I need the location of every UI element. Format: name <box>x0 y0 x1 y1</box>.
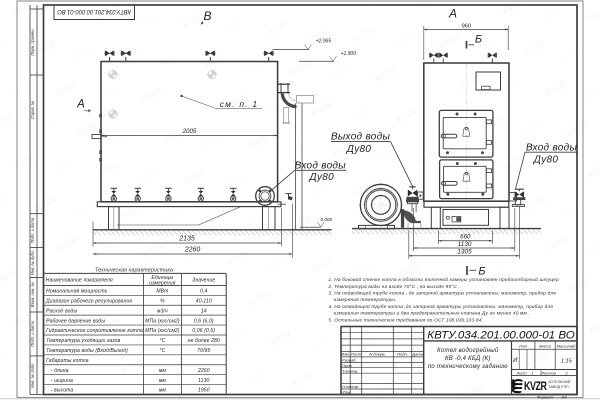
svg-text:0.000: 0.000 <box>321 217 333 222</box>
svg-text:°С: °С <box>159 348 165 354</box>
svg-text:Подп. и дата: Подп. и дата <box>30 320 35 346</box>
svg-text:Температура уходящих газов: Температура уходящих газов <box>46 338 120 344</box>
svg-text:мм: мм <box>159 378 167 384</box>
svg-text:0,06 (0,6): 0,06 (0,6) <box>192 328 215 334</box>
svg-text:Котел водогрейный: Котел водогрейный <box>437 347 499 354</box>
svg-text:Номинальная мощность: Номинальная мощность <box>46 289 108 295</box>
svg-text:Гидравлическое сопротивление к: Гидравлическое сопротивление котла <box>46 328 143 334</box>
svg-text:ЗАВОД РЭП: ЗАВОД РЭП <box>549 385 570 389</box>
svg-text:1: 1 <box>531 371 533 376</box>
svg-text:А: А <box>448 7 457 21</box>
svg-text:- ширина: - ширина <box>46 378 73 384</box>
svg-text:Т.контр.: Т.контр. <box>342 368 358 373</box>
svg-text:40-110: 40-110 <box>196 298 212 304</box>
svg-text:Лит: Лит <box>518 344 528 349</box>
svg-text:- высота: - высота <box>46 388 73 394</box>
svg-text:Масса: Масса <box>539 344 552 349</box>
svg-text:Габариты котла: Габариты котла <box>46 358 89 364</box>
svg-text:4. На отводящей трубе котла ,: 4. На отводящей трубе котла ,до запорной… <box>328 303 553 310</box>
svg-text:Пров.: Пров. <box>342 363 353 368</box>
svg-text:см. п. 1: см. п. 1 <box>220 99 259 109</box>
svg-text:°С: °С <box>159 338 165 344</box>
svg-text:Лист: Лист <box>515 371 527 376</box>
svg-text:1305: 1305 <box>457 249 472 256</box>
svg-text:2260: 2260 <box>184 247 201 254</box>
svg-text:0,4: 0,4 <box>200 289 207 295</box>
svg-text:+2.065: +2.065 <box>316 39 332 45</box>
svg-text:Н.контр.: Н.контр. <box>342 384 359 389</box>
svg-text:2. Температура воды на входе: 2. Температура воды на входе 70°С , на в… <box>327 284 460 290</box>
svg-text:2135: 2135 <box>178 236 195 243</box>
svg-text:Ду80: Ду80 <box>346 144 372 155</box>
svg-text:1130: 1130 <box>458 241 472 248</box>
svg-text:Б: Б <box>475 34 482 46</box>
svg-text:мм: мм <box>159 368 167 374</box>
svg-text:по техническому заданию: по техническому заданию <box>428 364 508 370</box>
svg-text:Инв. № дубл.: Инв. № дубл. <box>30 250 35 275</box>
svg-text:Листов: Листов <box>540 371 556 376</box>
svg-text:Масштаб: Масштаб <box>557 344 576 349</box>
svg-text:И: И <box>513 358 518 364</box>
svg-text:14: 14 <box>201 308 207 314</box>
svg-text:1:15: 1:15 <box>561 358 573 364</box>
svg-text:Ду80: Ду80 <box>533 154 559 165</box>
svg-text:Дата: Дата <box>411 352 423 357</box>
svg-text:Формат: Формат <box>537 395 554 400</box>
svg-text:Вход воды: Вход воды <box>526 142 578 153</box>
svg-text:КВ -0,4 КБД (К): КВ -0,4 КБД (К) <box>445 356 491 362</box>
svg-text:А: А <box>76 99 85 111</box>
svg-text:Разраб.: Разраб. <box>342 357 356 362</box>
svg-text:N докум.: N докум. <box>369 352 385 357</box>
svg-text:Подп. и дата: Подп. и дата <box>30 217 35 243</box>
svg-text:1130: 1130 <box>198 378 209 384</box>
svg-text:КВТУ.034.201.00.000-01 ВО: КВТУ.034.201.00.000-01 ВО <box>57 8 131 15</box>
svg-text:КВТУ.034.201.00.000-01 ВО: КВТУ.034.201.00.000-01 ВО <box>427 330 575 342</box>
svg-text:2260: 2260 <box>197 368 210 374</box>
svg-text:КОТЕЛЬНЫЙ: КОТЕЛЬНЫЙ <box>549 380 571 384</box>
svg-text:3. На подводящей трубе котла: 3. На подводящей трубе котла , до запорн… <box>328 290 556 297</box>
svg-text:- длина: - длина <box>46 368 69 374</box>
svg-text:1950: 1950 <box>198 388 210 394</box>
svg-text:2005: 2005 <box>182 128 197 135</box>
svg-text:Значение: Значение <box>192 278 215 284</box>
svg-text:660: 660 <box>460 234 471 241</box>
svg-text:м3/ч: м3/ч <box>157 308 168 314</box>
svg-text:Изм.: Изм. <box>341 352 350 357</box>
svg-text:Наименование показателя: Наименование показателя <box>46 278 113 284</box>
svg-text:0,6 (6,0): 0,6 (6,0) <box>194 318 214 324</box>
svg-text:Расход воды: Расход воды <box>46 308 77 314</box>
svg-text:%: % <box>160 298 165 304</box>
svg-text:1. На боковой стенке котла в: 1. На боковой стенке котла в области топ… <box>328 276 559 283</box>
svg-text:960: 960 <box>461 23 471 29</box>
svg-text:измерения температуры.: измерения температуры. <box>334 298 397 303</box>
svg-text:МПа (кгс/см2): МПа (кгс/см2) <box>145 318 180 324</box>
svg-text:Справ. №: Справ. № <box>30 100 35 119</box>
svg-text:KVZR: KVZR <box>524 379 547 393</box>
svg-text:Инв. № подл.: Инв. № подл. <box>30 362 35 387</box>
svg-text:70/95: 70/95 <box>197 348 210 354</box>
svg-text:Б: Б <box>478 266 485 278</box>
svg-text:мм: мм <box>159 388 167 394</box>
svg-text:Утв.: Утв. <box>342 389 351 394</box>
svg-text:Рабочее давление воды: Рабочее давление воды <box>46 318 105 324</box>
svg-text:Перв. примен.: Перв. примен. <box>30 28 35 55</box>
svg-text:+1.900: +1.900 <box>341 51 357 57</box>
svg-text:Подп.: Подп. <box>397 352 408 357</box>
svg-text:измерения температуры и два пр: измерения температуры и два предохраните… <box>334 311 530 317</box>
svg-text:5. Остальные технические треб: 5. Остальные технические требования по О… <box>328 317 483 323</box>
svg-text:не более 280: не более 280 <box>188 338 220 344</box>
svg-text:измерения: измерения <box>149 280 176 286</box>
svg-text:Диапазон рабочего регулировани: Диапазон рабочего регулирования <box>45 298 132 304</box>
svg-text:МПа (кгс/см2): МПа (кгс/см2) <box>145 328 180 334</box>
svg-text:Вход воды: Вход воды <box>295 160 347 171</box>
svg-text:Техническая характеристика: Техническая характеристика <box>95 267 173 273</box>
svg-text:МВт: МВт <box>156 289 168 295</box>
svg-text:Взам. инв. №: Взам. инв. № <box>30 282 35 308</box>
svg-text:Лист: Лист <box>350 352 362 357</box>
svg-text:Ду80: Ду80 <box>309 172 335 183</box>
svg-text:А3: А3 <box>561 395 568 400</box>
svg-text:Температура воды (Вход/Выход): Температура воды (Вход/Выход) <box>46 348 128 354</box>
svg-text:Выход воды: Выход воды <box>331 132 391 143</box>
svg-text:В: В <box>203 9 211 23</box>
